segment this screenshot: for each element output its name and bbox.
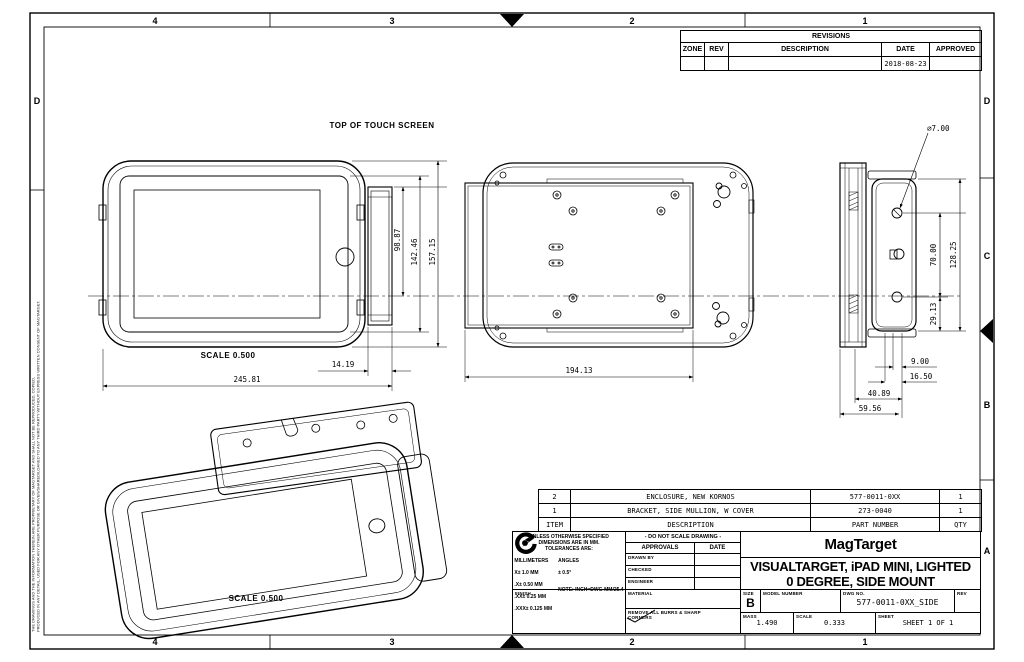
revision-description: [729, 57, 882, 71]
center-mark-top: [500, 14, 524, 27]
company-name: MagTarget: [824, 536, 896, 553]
approvals-column: - DO NOT SCALE DRAWING - APPROVALS DATE …: [626, 532, 741, 633]
drawing-sheet: 4 3 2 1 4 3 2 1 D C B A D THE DRAWINGS A…: [0, 0, 1024, 662]
material-box: MATERIAL: [626, 590, 740, 609]
part-number: 273-0040: [811, 504, 940, 518]
dim-29-13: 29.13: [929, 303, 938, 326]
front-scale-label: SCALE 0.500: [201, 351, 256, 360]
mass-cell: MASS 1.490: [741, 613, 794, 633]
parts-col-qty: QTY: [940, 518, 982, 532]
drawing-title-line1: VISUALTARGET, iPAD MINI, LIGHTED: [741, 559, 980, 574]
part-description: BRACKET, SIDE MULLION, W COVER: [571, 504, 811, 518]
drawn-by-label: DRAWN BY: [626, 554, 694, 560]
parts-col-item: ITEM: [539, 518, 571, 532]
part-number: 577-0011-0XX: [811, 490, 940, 504]
title-block: UNLESS OTHERWISE SPECIFIED DIMENSIONS AR…: [512, 531, 981, 634]
company-logo-row: MagTarget: [741, 532, 980, 558]
parts-list-table: 2 ENCLOSURE, NEW KORNOS 577-0011-0XX 1 1…: [538, 489, 982, 532]
dim-70-00: 70.00: [929, 243, 938, 266]
parts-col-part-number: PART NUMBER: [811, 518, 940, 532]
checked-date: [695, 566, 740, 577]
parts-row: 2 ENCLOSURE, NEW KORNOS 577-0011-0XX 1: [539, 490, 982, 504]
revision-rev: [705, 57, 729, 71]
mass-value: 1.490: [741, 619, 793, 627]
parts-row: 1 BRACKET, SIDE MULLION, W COVER 273-004…: [539, 504, 982, 518]
mass-scale-sheet-row: MASS 1.490 SCALE 0.333 SHEET SHEET 1 OF …: [741, 613, 980, 633]
drawing-number-row: SIZE B MODEL NUMBER DWG NO. 577-0011-0XX…: [741, 590, 980, 613]
dim-245-81: 245.81: [233, 375, 260, 384]
part-qty: 1: [940, 504, 982, 518]
tolerance-angle-value: ± 0.5°: [558, 570, 623, 576]
do-not-scale-note: - DO NOT SCALE DRAWING -: [626, 532, 740, 543]
approvals-header: APPROVALS DATE: [626, 543, 740, 554]
center-mark-right: [980, 319, 993, 343]
revisions-col-approved: APPROVED: [930, 43, 982, 57]
tolerance-angle-header: ANGLES: [558, 558, 623, 564]
corner-screws: [495, 172, 747, 339]
hatch-bands: [849, 192, 858, 313]
drawing-title: VISUALTARGET, iPAD MINI, LIGHTED 0 DEGRE…: [741, 558, 980, 590]
revisions-table: REVISIONS ZONE REV DESCRIPTION DATE APPR…: [680, 30, 982, 71]
zone-right-a: A: [984, 546, 991, 556]
tolerance-value: .X± 0.50 MM: [514, 582, 552, 588]
keyhole-slots: [713, 183, 731, 327]
revision-approved: [930, 57, 982, 71]
parts-col-description: DESCRIPTION: [571, 518, 811, 532]
revisions-col-date: DATE: [882, 43, 930, 57]
tolerance-mm-header: MILLIMETERS: [514, 558, 552, 564]
part-item: 1: [539, 504, 571, 518]
side-view: [840, 163, 916, 347]
home-button: [336, 248, 354, 266]
dim-16-50: 16.50: [910, 372, 933, 381]
revisions-col-zone: ZONE: [681, 43, 705, 57]
proprietary-line-2: PRODUCED IN ANY DETAIL, USED FOR ANY OTH…: [36, 300, 41, 632]
dim-157-15: 157.15: [428, 238, 437, 265]
back-view: [465, 163, 754, 347]
dim-40-89: 40.89: [868, 389, 891, 398]
iso-view: [101, 401, 450, 642]
zone-top-3: 3: [389, 16, 394, 26]
checked-label: CHECKED: [626, 566, 694, 572]
center-mark-bottom: [500, 635, 524, 648]
zone-right-d: D: [984, 96, 991, 106]
revisions-col-description: DESCRIPTION: [729, 43, 882, 57]
zone-right-b: B: [984, 400, 991, 410]
drawn-by-date: [695, 554, 740, 565]
material-label: MATERIAL: [626, 590, 740, 596]
size-cell: SIZE B: [741, 590, 761, 612]
revisions-col-rev: REV: [705, 43, 729, 57]
zone-bottom-3: 3: [389, 637, 394, 647]
dim-128-25: 128.25: [949, 241, 958, 268]
revisions-title: REVISIONS: [681, 31, 982, 43]
drawing-title-line2: 0 DEGREE, SIDE MOUNT: [741, 574, 980, 589]
iso-bracket: [210, 401, 422, 495]
model-number-cell: MODEL NUMBER: [761, 590, 841, 612]
zone-top-4: 4: [152, 16, 157, 26]
finish-box: FINISH: [513, 590, 625, 633]
zone-top-2: 2: [629, 16, 634, 26]
revisions-row: 2018-08-23: [681, 57, 982, 71]
front-dimensions: 98.87 142.46 157.15 14.19 245.81: [103, 161, 447, 391]
dim-194-13: 194.13: [565, 366, 592, 375]
proprietary-note: THE DRAWINGS AND THE INFORMATION THEREIN…: [31, 300, 41, 632]
sheet-cell: SHEET SHEET 1 OF 1: [876, 613, 980, 633]
iso-scale-label: SCALE 0.500: [229, 594, 284, 603]
side-bracket-edge: [368, 187, 392, 325]
sheet-value: SHEET 1 OF 1: [876, 619, 980, 627]
dwg-number-cell: DWG NO. 577-0011-0XX_SIDE: [841, 590, 955, 612]
dim-142-46: 142.46: [410, 238, 419, 266]
engineer-label: ENGINEER: [626, 578, 694, 584]
approvals-label: APPROVALS: [626, 543, 695, 553]
parts-header-row: ITEM DESCRIPTION PART NUMBER QTY: [539, 518, 982, 532]
top-of-touch-screen-note: TOP OF TOUCH SCREEN: [329, 121, 434, 130]
dim-hole-dia: ⌀7.00: [927, 124, 950, 133]
engineer-date: [695, 578, 740, 589]
part-description: ENCLOSURE, NEW KORNOS: [571, 490, 811, 504]
deburr-checkmark-icon: [626, 609, 656, 623]
mounting-plate: [465, 183, 693, 328]
mounting-holes: [549, 191, 679, 318]
revisions-header-row: ZONE REV DESCRIPTION DATE APPROVED: [681, 43, 982, 57]
zone-bottom-1: 1: [862, 637, 867, 647]
engineer-row: ENGINEER: [626, 578, 740, 590]
zone-right-c: C: [984, 251, 991, 261]
rev-label: REV: [955, 590, 980, 596]
checked-row: CHECKED: [626, 566, 740, 578]
scale-value: 0.333: [794, 619, 875, 627]
drawn-by-row: DRAWN BY: [626, 554, 740, 566]
revision-date: 2018-08-23: [882, 57, 930, 71]
model-number-label: MODEL NUMBER: [761, 590, 840, 596]
back-dimensions: 194.13: [465, 330, 693, 382]
dim-59-56: 59.56: [859, 404, 882, 413]
iso-tablet: [101, 435, 450, 642]
size-value: B: [741, 596, 760, 610]
deburr-box: REMOVE ALL BURRS & SHARP CORNERS: [626, 609, 740, 633]
dim-98-87: 98.87: [393, 229, 402, 252]
revision-zone: [681, 57, 705, 71]
dim-9-00: 9.00: [911, 357, 930, 366]
part-item: 2: [539, 490, 571, 504]
zone-top-1: 1: [862, 16, 867, 26]
approvals-date-label: DATE: [695, 543, 740, 553]
dwg-number-value: 577-0011-0XX_SIDE: [841, 598, 954, 607]
zone-left-d: D: [34, 96, 41, 106]
dwg-number-label: DWG NO.: [841, 590, 954, 596]
tolerance-value: X± 1.0 MM: [514, 570, 552, 576]
scale-cell: SCALE 0.333: [794, 613, 876, 633]
rev-cell: REV: [955, 590, 980, 612]
dim-14-19: 14.19: [332, 360, 355, 369]
front-view: SCALE 0.500: [99, 161, 392, 360]
finish-label: FINISH: [513, 590, 625, 596]
part-qty: 1: [940, 490, 982, 504]
zone-bottom-2: 2: [629, 637, 634, 647]
magtarget-logo-icon: [513, 532, 537, 554]
title-column: MagTarget VISUALTARGET, iPAD MINI, LIGHT…: [741, 532, 980, 633]
